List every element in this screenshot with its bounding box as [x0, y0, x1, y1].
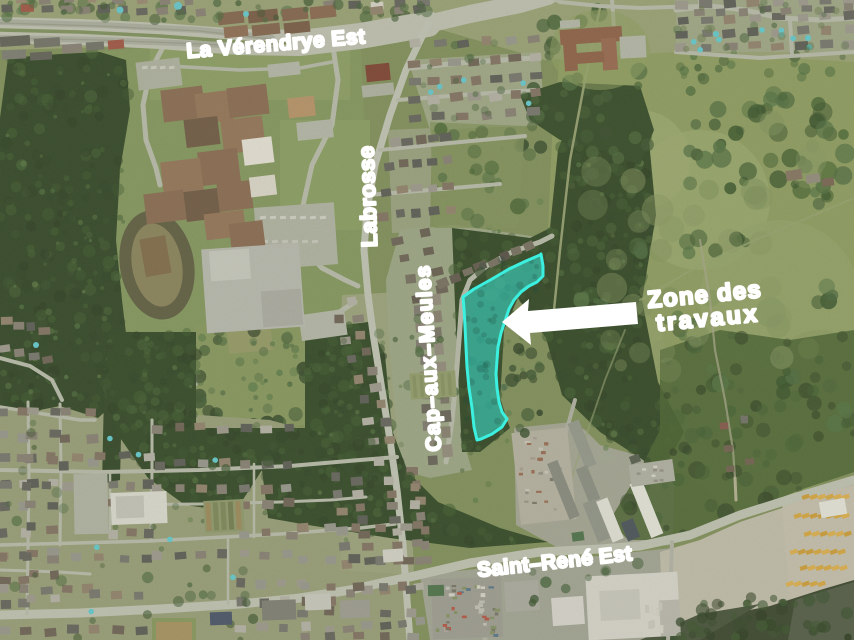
svg-text:Labrosse: Labrosse	[353, 145, 382, 248]
